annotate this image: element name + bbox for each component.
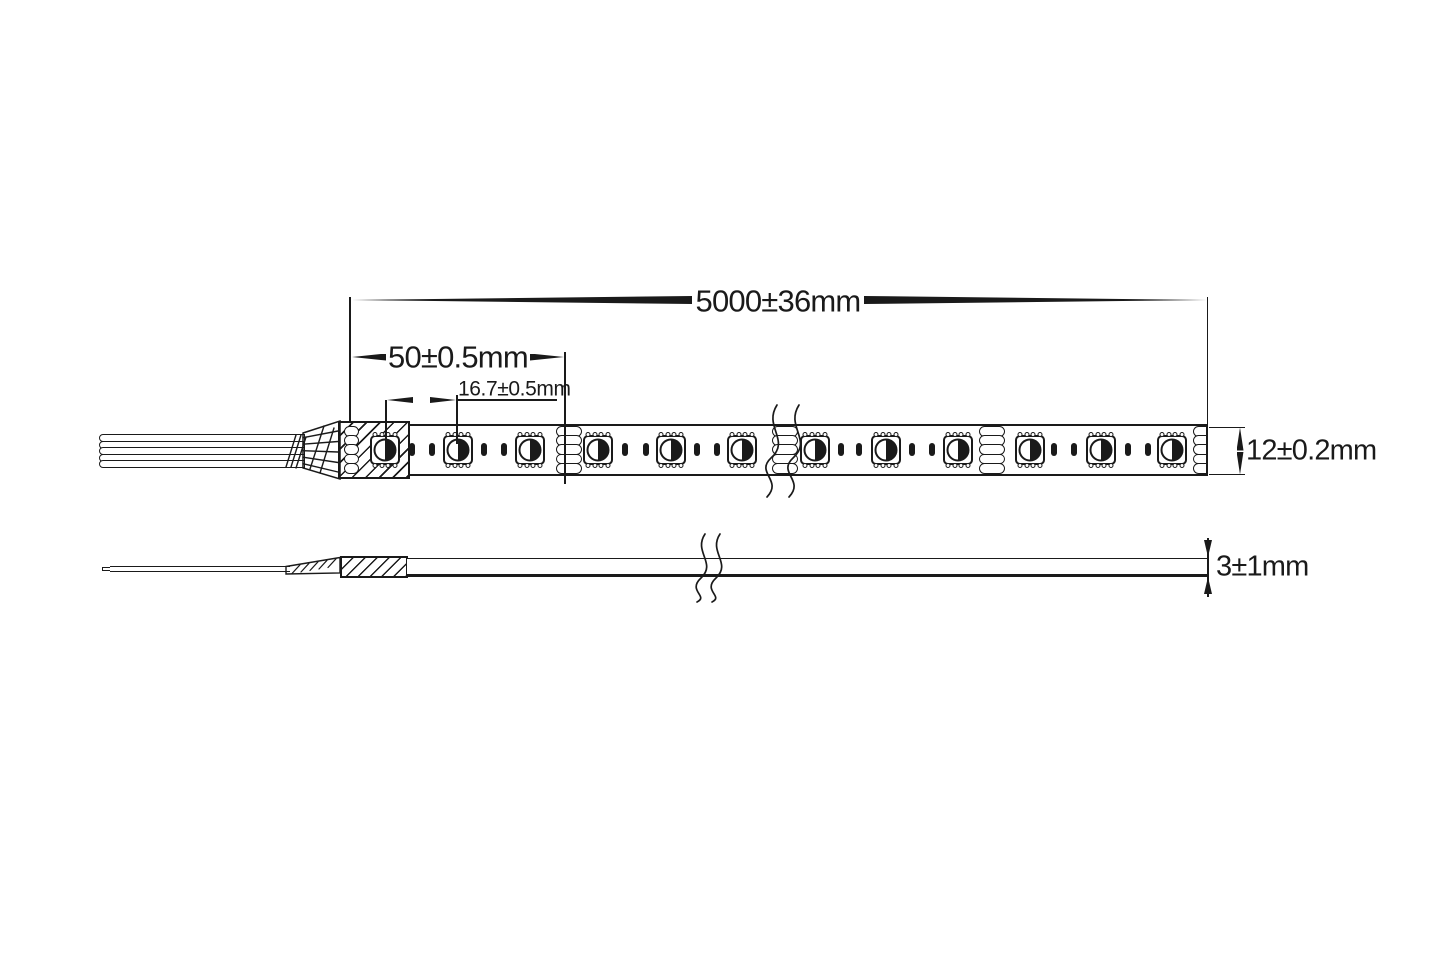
led-pin	[459, 463, 464, 468]
technical-drawing-canvas: 5000±36mm 50±0.5mm 16.7±0.5mm 12±0.2mm	[0, 0, 1445, 962]
led-pin	[730, 432, 735, 437]
led-emitter-circle	[519, 439, 542, 462]
led-chip	[515, 433, 545, 467]
led-pin	[952, 432, 957, 437]
led-emitter-circle	[660, 439, 683, 462]
solder-pad	[979, 463, 1005, 474]
led-pin	[1089, 432, 1094, 437]
led-pin	[599, 432, 604, 437]
led-pin	[1166, 432, 1171, 437]
led-pin	[959, 463, 964, 468]
led-pin	[743, 432, 748, 437]
led-pin	[822, 463, 827, 468]
extension-line-width-top	[1209, 427, 1245, 428]
led-chip	[1157, 433, 1187, 467]
solder-dot	[429, 443, 435, 456]
led-pin	[1024, 463, 1029, 468]
led-pins	[874, 463, 899, 468]
led-pin	[537, 432, 542, 437]
led-chip	[656, 433, 686, 467]
led-pin	[822, 432, 827, 437]
led-pin	[592, 432, 597, 437]
led-pin	[1089, 463, 1094, 468]
led-pin	[672, 463, 677, 468]
dimension-arrow-left	[352, 354, 386, 361]
led-emitter-circle	[731, 439, 754, 462]
led-pin	[816, 432, 821, 437]
led-pin	[1018, 463, 1023, 468]
led-pin	[1024, 432, 1029, 437]
solder-pad	[1193, 463, 1206, 474]
end-pad-column	[344, 426, 359, 474]
led-pin	[537, 463, 542, 468]
led-pin	[678, 463, 683, 468]
led-pin	[1179, 432, 1184, 437]
solder-dot	[1051, 443, 1057, 456]
led-pin	[373, 463, 378, 468]
led-chip	[583, 433, 613, 467]
strip-body-side-view	[407, 558, 1208, 577]
wire	[99, 460, 305, 468]
solder-dot	[1125, 443, 1131, 456]
led-pin	[1031, 463, 1036, 468]
led-pin	[730, 463, 735, 468]
led-pins	[586, 463, 611, 468]
dimension-arrow-right	[864, 296, 1207, 304]
wire-fanout	[280, 413, 344, 485]
dimension-arrow-left	[387, 397, 413, 403]
led-emitter-circle	[447, 439, 470, 462]
led-pin	[386, 463, 391, 468]
wire-wrap-side-view	[282, 548, 344, 580]
solder-pad	[344, 463, 359, 474]
led-emitter-circle	[947, 439, 970, 462]
led-pin	[465, 432, 470, 437]
led-pin	[586, 432, 591, 437]
solder-dot	[409, 443, 415, 456]
led-pins	[1160, 432, 1185, 437]
dimension-arrow-up	[1237, 428, 1244, 451]
solder-dot	[714, 443, 720, 456]
led-pin	[1160, 463, 1165, 468]
led-pin	[1095, 463, 1100, 468]
led-pins	[446, 432, 471, 437]
led-pin	[524, 463, 529, 468]
extension-line-left	[349, 297, 350, 423]
extension-line-cut-point	[564, 352, 565, 484]
solder-dot	[622, 443, 628, 456]
led-pin	[887, 463, 892, 468]
led-pin	[392, 432, 397, 437]
led-pin	[1173, 432, 1178, 437]
led-pin	[1108, 463, 1113, 468]
led-pins	[1089, 463, 1114, 468]
led-pin	[605, 432, 610, 437]
led-pins	[586, 432, 611, 437]
solder-dot	[694, 443, 700, 456]
led-pin	[518, 432, 523, 437]
led-chip	[871, 433, 901, 467]
solder-dot	[643, 443, 649, 456]
led-pin	[743, 463, 748, 468]
dimension-label-cut-length: 50±0.5mm	[388, 342, 526, 373]
cut-point-pads	[556, 426, 582, 474]
led-pin	[880, 432, 885, 437]
led-pin	[446, 463, 451, 468]
led-pin	[672, 432, 677, 437]
led-pins	[446, 463, 471, 468]
led-pin	[459, 432, 464, 437]
led-chip	[727, 433, 757, 467]
led-pin	[665, 463, 670, 468]
led-emitter-circle	[1090, 439, 1113, 462]
led-pins	[1089, 432, 1114, 437]
dimension-arrow-right	[530, 354, 564, 361]
led-pin	[893, 432, 898, 437]
solder-pad	[556, 463, 582, 474]
dimension-arrow-left	[352, 296, 692, 304]
led-pin	[379, 432, 384, 437]
solder-dot	[929, 443, 935, 456]
led-pin	[379, 463, 384, 468]
led-pin	[524, 432, 529, 437]
led-pin	[392, 463, 397, 468]
led-pin	[965, 463, 970, 468]
led-pin	[874, 463, 879, 468]
dimension-arrow-down	[1237, 452, 1244, 475]
led-pins	[874, 432, 899, 437]
dimension-label-led-pitch: 16.7±0.5mm	[458, 379, 571, 400]
led-pin	[749, 463, 754, 468]
led-pin	[1102, 463, 1107, 468]
led-pin	[586, 463, 591, 468]
break-symbol-side-view	[685, 532, 735, 604]
led-pins	[946, 432, 971, 437]
solder-dot	[481, 443, 487, 456]
led-pins	[659, 463, 684, 468]
led-pin	[874, 432, 879, 437]
led-pin	[965, 432, 970, 437]
led-pin	[952, 463, 957, 468]
led-pin	[1179, 463, 1184, 468]
extension-line-right	[1207, 297, 1208, 426]
led-pins	[659, 432, 684, 437]
heat-shrink-side-view	[340, 556, 408, 578]
led-pin	[465, 463, 470, 468]
led-emitter-circle	[875, 439, 898, 462]
led-pin	[446, 432, 451, 437]
extension-line-led1	[385, 400, 386, 444]
led-pin	[1166, 463, 1171, 468]
led-pin	[816, 463, 821, 468]
led-pin	[1173, 463, 1178, 468]
led-emitter-circle	[1161, 439, 1184, 462]
led-pins	[946, 463, 971, 468]
led-pin	[518, 463, 523, 468]
dimension-arrow-right	[430, 397, 456, 403]
led-pins	[373, 463, 398, 468]
led-pin	[893, 463, 898, 468]
led-pins	[730, 432, 755, 437]
dimension-arrow-down	[1204, 540, 1212, 557]
dimension-arrow-up	[1204, 577, 1212, 594]
led-pin	[1037, 463, 1042, 468]
led-pin	[452, 463, 457, 468]
dimension-label-strip-thickness: 3±1mm	[1216, 553, 1309, 582]
dimension-label-overall-length: 5000±36mm	[692, 286, 864, 317]
led-pin	[1018, 432, 1023, 437]
led-pin	[531, 463, 536, 468]
led-pin	[659, 432, 664, 437]
led-pin	[1037, 432, 1042, 437]
led-pin	[1108, 432, 1113, 437]
led-pin	[1102, 432, 1107, 437]
solder-dot	[1145, 443, 1151, 456]
led-chip	[443, 433, 473, 467]
extension-line-led2	[456, 395, 457, 444]
led-pin	[678, 432, 683, 437]
led-pin	[749, 432, 754, 437]
solder-dot	[501, 443, 507, 456]
led-chip	[1086, 433, 1116, 467]
solder-dot	[838, 443, 844, 456]
wire-side-view	[110, 566, 290, 572]
led-pin	[887, 432, 892, 437]
led-pins	[1018, 432, 1043, 437]
led-pin	[605, 463, 610, 468]
led-pins	[1160, 463, 1185, 468]
cut-point-pads	[979, 426, 1005, 474]
led-pin	[736, 432, 741, 437]
led-pin	[880, 463, 885, 468]
break-symbol-top-view	[755, 400, 815, 500]
led-pin	[659, 463, 664, 468]
led-pin	[946, 463, 951, 468]
solder-dot	[856, 443, 862, 456]
led-pins	[730, 463, 755, 468]
led-pin	[1095, 432, 1100, 437]
led-chip	[943, 433, 973, 467]
led-pin	[1031, 432, 1036, 437]
led-pin	[599, 463, 604, 468]
led-pin	[531, 432, 536, 437]
led-pin	[1160, 432, 1165, 437]
solder-dot	[1071, 443, 1077, 456]
lead-wires	[99, 434, 305, 468]
solder-dot	[909, 443, 915, 456]
led-pins	[1018, 463, 1043, 468]
end-pad-column	[1193, 426, 1206, 474]
led-pin	[373, 432, 378, 437]
led-chip	[1015, 433, 1045, 467]
led-emitter-circle	[587, 439, 610, 462]
led-pin	[959, 432, 964, 437]
led-pins	[518, 463, 543, 468]
extension-line-width-bottom	[1209, 474, 1245, 475]
led-emitter-circle	[1019, 439, 1042, 462]
led-pin	[665, 432, 670, 437]
led-pins	[518, 432, 543, 437]
led-pin	[592, 463, 597, 468]
dimension-label-strip-width: 12±0.2mm	[1246, 437, 1376, 466]
led-pin	[736, 463, 741, 468]
led-pin	[946, 432, 951, 437]
